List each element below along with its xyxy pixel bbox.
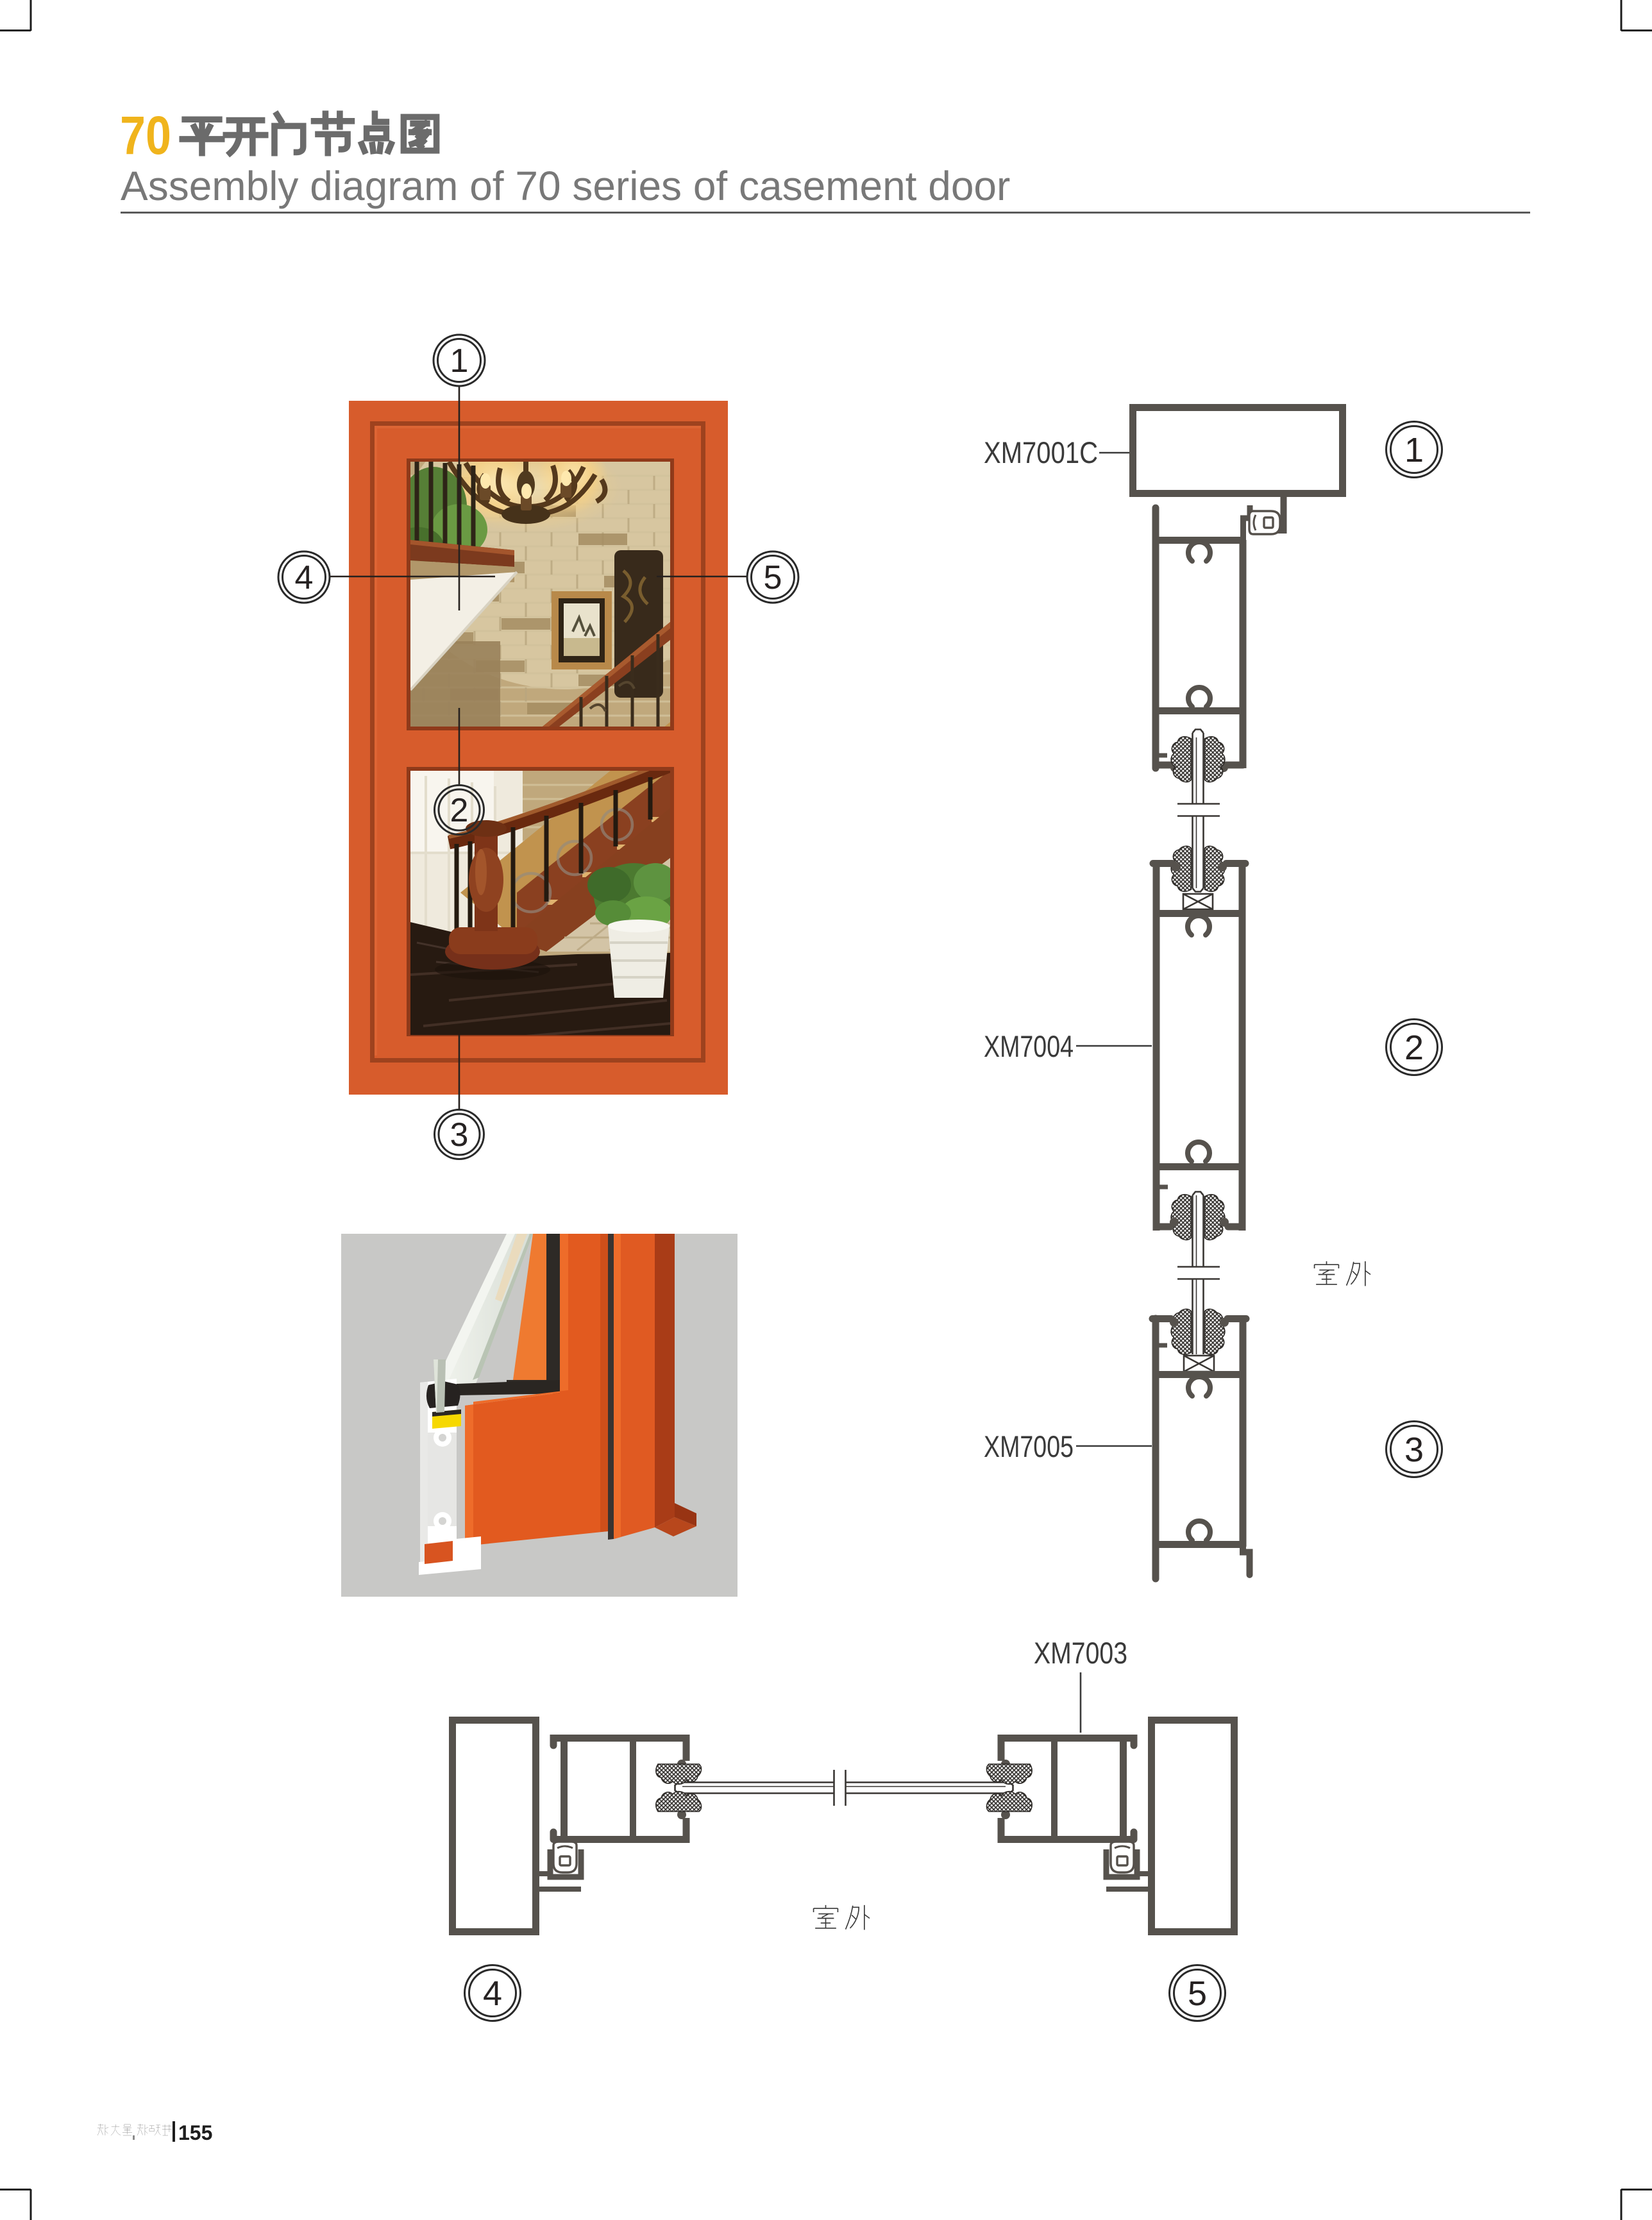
svg-text:XM7005: XM7005 [984,1429,1074,1463]
svg-text:155: 155 [178,2121,212,2144]
svg-text:Assembly diagram of 70 series: Assembly diagram of 70 series of casemen… [121,163,1010,209]
svg-text:2: 2 [1404,1029,1424,1067]
svg-text:5: 5 [764,559,782,596]
svg-text:3: 3 [450,1116,469,1154]
svg-text:5: 5 [1188,1974,1207,2013]
svg-text:4: 4 [483,1974,502,2013]
svg-text:1: 1 [450,342,469,380]
svg-text:XM7001C: XM7001C [984,435,1098,469]
svg-text:XM7003: XM7003 [1034,1636,1127,1670]
svg-text:1: 1 [1404,431,1424,469]
svg-text:3: 3 [1404,1431,1424,1469]
svg-text:XM7004: XM7004 [984,1029,1074,1063]
svg-text:70: 70 [120,105,171,165]
svg-text:2: 2 [450,792,469,829]
svg-text:4: 4 [295,559,314,596]
